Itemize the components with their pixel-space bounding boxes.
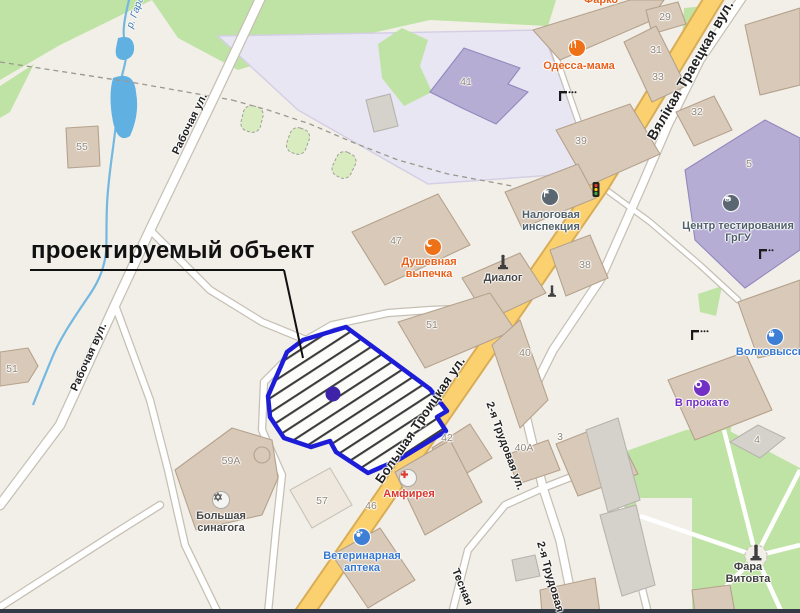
map-viewport[interactable]: проектируемый объект Вялікая Траецкая ву… — [0, 0, 800, 613]
education-icon[interactable] — [723, 195, 739, 211]
project-area-marker[interactable] — [326, 387, 341, 402]
bottom-edge-bar — [0, 609, 800, 613]
map-canvas — [0, 0, 800, 613]
traffic-light-icon — [593, 182, 600, 197]
bakery-icon[interactable] — [425, 239, 441, 255]
restaurant-icon[interactable] — [569, 40, 585, 56]
pharmacy-cross-icon[interactable] — [400, 470, 416, 486]
star-of-david-icon[interactable] — [213, 492, 229, 508]
building-55 — [66, 126, 100, 168]
rental-icon[interactable] — [694, 380, 710, 396]
paw-icon[interactable] — [354, 529, 370, 545]
supermarket-icon[interactable] — [767, 329, 783, 345]
building-synagogue-apse — [254, 447, 270, 463]
flag-icon[interactable] — [542, 189, 558, 205]
